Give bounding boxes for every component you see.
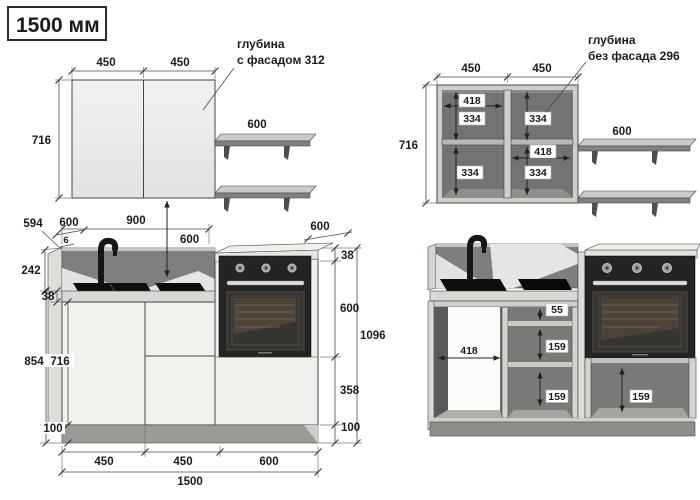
dim-half-right-bottom: 334 [529, 167, 547, 179]
sink [440, 279, 507, 291]
oven-logo [632, 354, 648, 356]
shelf-bracket [592, 151, 598, 165]
dim-half-right-top: 334 [529, 113, 547, 125]
dim-mid-drawer: 159 [548, 341, 566, 353]
dim-bottom-drawer: 159 [548, 391, 566, 403]
carcass-divider [504, 90, 511, 198]
dim-tall-depth: 600 [310, 221, 329, 233]
dim-tall-counter: 38 [341, 250, 354, 262]
dim-drawer-height: 358 [340, 385, 360, 397]
dim-width-1: 450 [94, 456, 113, 468]
dim-height-to-counter: 854 [24, 356, 44, 368]
dim-inner-width-left: 418 [463, 95, 481, 107]
shelf-bracket [652, 151, 658, 165]
sink-cabinet-open: 418 [434, 307, 502, 420]
tall-countertop-top [585, 244, 700, 250]
dim-oven-drawer: 159 [632, 391, 650, 403]
countertop [430, 291, 578, 301]
side-panel [48, 247, 62, 434]
dim-width-2: 450 [173, 456, 192, 468]
drawer-cabinet-open: 55 159 159 [502, 304, 578, 419]
oven-handle [227, 281, 304, 285]
dim-half-left-bottom: 334 [461, 167, 479, 179]
dim-door-left: 450 [461, 63, 480, 75]
dim-plinth-left: 100 [43, 423, 62, 435]
cooktop [155, 283, 206, 292]
dim-width-total: 1500 [177, 476, 203, 488]
dim-half-left-top: 334 [463, 113, 481, 125]
dim-splash-height: 242 [21, 265, 40, 277]
shelf-bracket [592, 203, 598, 217]
dim-box-height: 716 [50, 356, 69, 368]
kitchen-technical-drawing: 1500 мм 450 450 716 600 глубина с фасадо [0, 0, 700, 500]
shelf [508, 321, 572, 326]
plinth [430, 418, 695, 436]
view-upper-carcass: 450 450 716 600 418 334 334 334 418 334 … [399, 33, 696, 217]
cooktop [518, 279, 572, 290]
dim-door-right: 450 [532, 63, 551, 75]
wall-shelf-lower [215, 186, 316, 212]
dim-overhang: 6 [63, 235, 68, 246]
dim-oven-height: 600 [340, 303, 359, 315]
side-panel [428, 244, 436, 290]
wall-shelf-upper [578, 139, 696, 165]
dim-height: 716 [399, 140, 418, 152]
dim-door-right: 450 [170, 57, 189, 69]
dim-span-left: 900 [126, 215, 145, 227]
wall-shelf-upper [215, 134, 316, 160]
view-upper-front: 450 450 716 600 глубина с фасадом 312 [32, 37, 325, 212]
page-title: 1500 мм [16, 14, 100, 37]
oven-glass [227, 292, 304, 350]
dim-wall-gap: 600 [180, 234, 199, 246]
dim-height: 716 [32, 135, 51, 147]
dim-width-3: 600 [259, 456, 278, 468]
dim-side-panel-depth: 594 [23, 218, 43, 230]
dim-top-drawer: 55 [551, 304, 563, 316]
kitchen-drawing-page: 1500 мм 450 450 716 600 глубина с фасадо [0, 0, 700, 500]
dim-shelf-depth: 600 [247, 119, 266, 131]
dim-shelf-depth: 600 [612, 126, 631, 138]
wall-shelf-lower [578, 191, 696, 217]
shelf-bracket [652, 203, 658, 217]
shelf [508, 362, 572, 367]
dim-opening-width: 418 [460, 345, 478, 357]
plinth [62, 425, 318, 443]
shelf-bracket [224, 146, 230, 160]
dim-counter-thickness: 38 [42, 291, 55, 303]
dim-door-left: 450 [96, 57, 115, 69]
note-depth-no-facade-1: глубина [588, 33, 636, 47]
base-facades [62, 302, 215, 425]
oven-glass [593, 292, 687, 352]
note-depth-with-facade-2: с фасадом 312 [237, 53, 325, 67]
oven-handle [593, 281, 687, 285]
note-depth-no-facade-2: без фасада 296 [588, 49, 680, 63]
view-base-carcass: 418 55 159 159 [428, 238, 700, 436]
dim-plinth-right: 100 [341, 422, 360, 434]
title-block: 1500 мм [8, 7, 106, 40]
oven-housing: 159 [578, 244, 700, 425]
tall-oven-cabinet [215, 243, 333, 425]
side-rail [428, 301, 434, 430]
countertop [62, 291, 215, 302]
oven-logo [258, 352, 272, 354]
shelf-bracket [284, 146, 290, 160]
view-base-front: 594 600 6 900 600 600 242 38 854 716 100… [21, 201, 386, 488]
note-depth-with-facade-1: глубина [237, 37, 285, 51]
shelf-bracket [224, 198, 230, 212]
dim-tall-height: 1096 [360, 330, 386, 342]
dim-inner-width-right: 418 [534, 146, 552, 158]
shelf-bracket [284, 198, 290, 212]
